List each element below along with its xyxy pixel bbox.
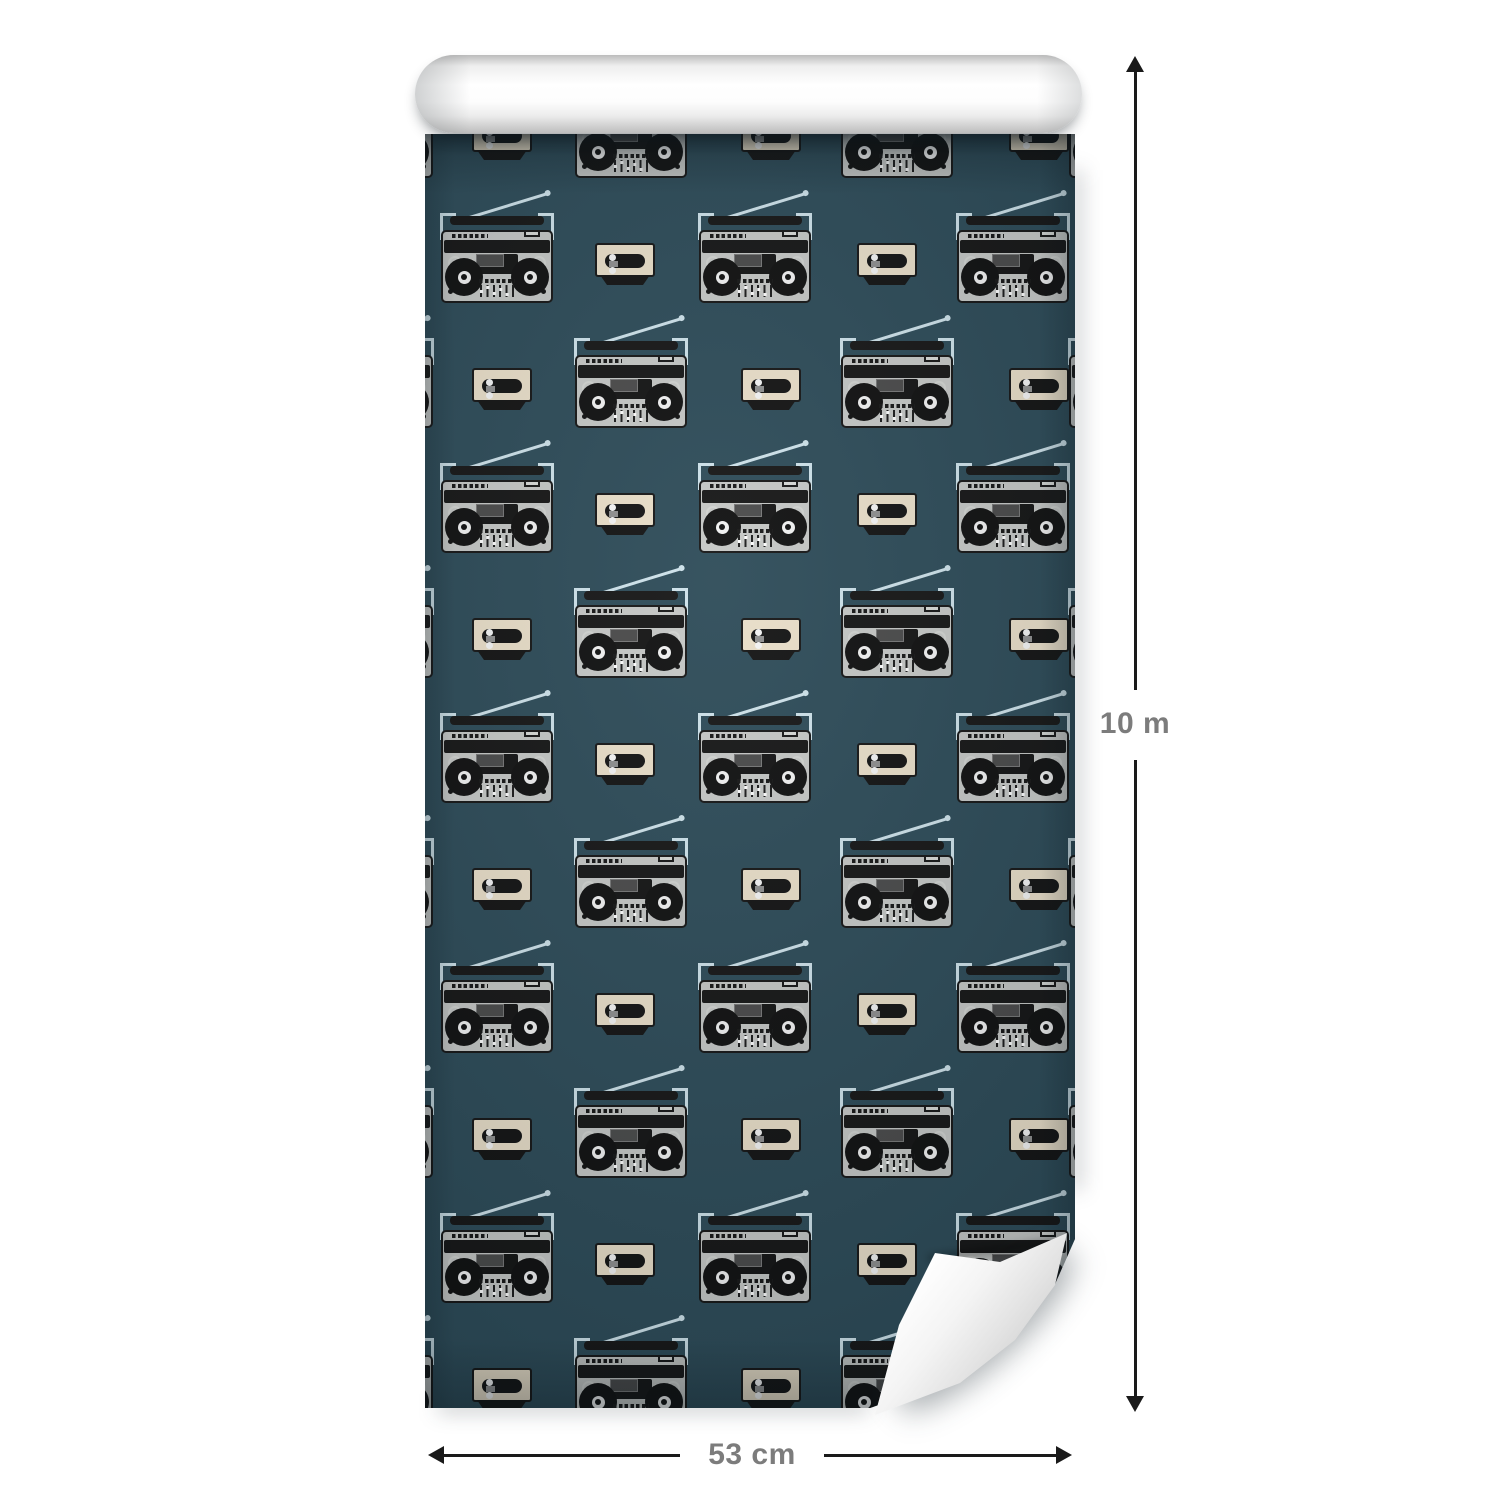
cassette-illustration [1009,1368,1069,1408]
top-button [782,480,798,487]
pattern-row [425,211,1075,299]
boombox-illustration [957,211,1069,299]
boombox-body [1069,1355,1075,1408]
width-dimension-arrow: 53 cm [428,1440,1072,1470]
boombox-body [1069,605,1075,678]
boombox-illustration [441,1211,553,1299]
pattern-row [425,336,1075,424]
cassette-window [751,1379,791,1393]
button-row [879,1154,915,1158]
cassette-body [1009,618,1069,652]
cassette-illustration [472,134,532,162]
boombox-illustration [1069,1086,1075,1174]
button-row [968,484,1004,488]
button-row [710,1234,746,1238]
tuner-strip [578,1365,684,1378]
button-row [737,529,773,533]
top-button [1040,1230,1056,1237]
boombox-body [841,855,953,928]
dimension-line [442,1454,680,1457]
boombox-body [575,355,687,428]
pattern-row [425,461,1075,549]
tuner-strip [960,740,1066,753]
cassette-window [1019,379,1059,393]
boombox-body [441,230,553,303]
boombox-body [841,605,953,678]
top-button [658,605,674,612]
cassette-illustration [472,1118,532,1162]
boombox-illustration [441,461,553,549]
boombox-illustration [575,836,687,924]
cassette-body [595,243,655,277]
button-row [968,984,1004,988]
boombox-handle [450,716,544,725]
boombox-illustration [841,586,953,674]
button-row [852,1359,888,1363]
button-row [737,779,773,783]
top-button [658,355,674,362]
tuner-strip [1072,1115,1075,1128]
cassette-illustration [1009,368,1069,412]
speaker-left-icon [1073,1383,1075,1408]
button-row [852,859,888,863]
cassette-body [857,493,917,527]
boombox-body [699,730,811,803]
top-button [524,230,540,237]
speaker-left-icon [1073,883,1075,921]
boombox-body [957,480,1069,553]
tuner-strip [844,865,950,878]
cassette-base [862,1275,912,1285]
cassette-illustration [741,368,801,412]
cassette-illustration [595,743,655,787]
boombox-body [425,855,433,928]
equalizer-sliders [996,1035,1030,1047]
cassette-window [482,879,522,893]
wallpaper-sheet [425,134,1075,1408]
top-button [924,855,940,862]
cassette-base [477,150,527,160]
cassette-base [746,1150,796,1160]
boombox-illustration [575,1086,687,1174]
boombox-handle [708,466,802,475]
boombox-body [1069,355,1075,428]
boombox-illustration [575,586,687,674]
boombox-body [425,1105,433,1178]
boombox-body [841,134,953,178]
dimension-line [1134,70,1137,690]
boombox-body [575,605,687,678]
boombox-illustration [957,711,1069,799]
cassette-window [867,1254,907,1268]
tuner-strip [578,365,684,378]
boombox-body [575,134,687,178]
pattern-row [425,134,1075,174]
boombox-body [575,1355,687,1408]
equalizer-sliders [880,660,914,672]
tuner-strip [1072,615,1075,628]
boombox-handle [450,216,544,225]
tuner-strip [844,1115,950,1128]
arrowhead-down-icon [1126,1396,1144,1412]
button-row [452,234,488,238]
cassette-base [477,650,527,660]
top-button [658,855,674,862]
cassette-illustration [595,1243,655,1287]
top-button [924,355,940,362]
button-row [452,734,488,738]
speaker-left-icon [1073,633,1075,671]
tuner-strip [444,1240,550,1253]
boombox-body [841,355,953,428]
boombox-illustration [841,836,953,924]
cassette-window [867,754,907,768]
cassette-illustration [857,493,917,537]
tuner-strip [1072,1365,1075,1378]
boombox-illustration [575,134,687,174]
cassette-illustration [857,243,917,287]
button-row [479,779,515,783]
width-label: 53 cm [680,1437,824,1473]
tuner-strip [960,990,1066,1003]
button-row [879,904,915,908]
tuner-strip [444,740,550,753]
boombox-handle [708,966,802,975]
boombox-body [425,1355,433,1408]
cassette-illustration [857,1243,917,1287]
cassette-body [472,618,532,652]
tuner-strip [444,490,550,503]
cassette-body [1009,368,1069,402]
cassette-base [862,775,912,785]
button-row [479,279,515,283]
cassette-body [595,993,655,1027]
equalizer-sliders [614,160,648,172]
cassette-body [595,1243,655,1277]
pattern-row [425,711,1075,799]
equalizer-sliders [738,785,772,797]
tuner-strip [578,615,684,628]
button-row [879,404,915,408]
boombox-illustration [575,1336,687,1408]
boombox-handle [584,841,678,850]
boombox-illustration [841,336,953,424]
cassette-illustration [472,1368,532,1408]
button-row [479,529,515,533]
speaker-left-icon [1073,1133,1075,1171]
cassette-body [472,368,532,402]
boombox-illustration [1069,586,1075,674]
button-row [586,1359,622,1363]
button-row [710,484,746,488]
cassette-illustration [1009,618,1069,662]
boombox-body [441,980,553,1053]
button-row [852,1109,888,1113]
cassette-base [477,900,527,910]
boombox-handle [584,1091,678,1100]
cassette-body [1009,134,1069,152]
tuner-strip [844,615,950,628]
button-row [852,359,888,363]
dimension-line [824,1454,1058,1457]
button-row [968,734,1004,738]
cassette-body [741,868,801,902]
boombox-body [957,730,1069,803]
button-row [737,1279,773,1283]
cassette-base [1014,400,1064,410]
boombox-illustration [425,586,433,674]
cassette-base [477,1400,527,1408]
boombox-illustration [425,336,433,424]
boombox-handle [584,1341,678,1350]
pattern-row [425,961,1075,1049]
button-row [613,654,649,658]
cassette-window [867,504,907,518]
boombox-body [441,730,553,803]
equalizer-sliders [880,910,914,922]
cassette-body [472,1118,532,1152]
button-row [710,234,746,238]
boombox-handle [850,591,944,600]
cassette-base [746,1400,796,1408]
cassette-base [1014,900,1064,910]
boombox-body [699,480,811,553]
boombox-illustration [441,711,553,799]
cassette-illustration [741,868,801,912]
cassette-window [867,254,907,268]
cassette-body [472,134,532,152]
button-row [613,404,649,408]
top-button [782,730,798,737]
cassette-window [605,254,645,268]
button-row [613,1154,649,1158]
equalizer-sliders [880,1160,914,1172]
cassette-illustration [472,868,532,912]
equalizer-sliders [480,1035,514,1047]
boombox-illustration [1069,1336,1075,1408]
tuner-strip [444,990,550,1003]
cassette-base [746,650,796,660]
boombox-illustration [425,836,433,924]
boombox-body [1069,134,1075,178]
equalizer-sliders [480,535,514,547]
cassette-window [751,379,791,393]
boombox-handle [708,1216,802,1225]
top-button [1040,980,1056,987]
button-row [879,654,915,658]
button-row [879,154,915,158]
cassette-window [482,134,522,143]
top-button [524,480,540,487]
boombox-handle [850,841,944,850]
boombox-body [425,134,433,178]
cassette-window [751,629,791,643]
cassette-illustration [741,618,801,662]
equalizer-sliders [480,285,514,297]
equalizer-sliders [480,785,514,797]
cassette-base [1014,150,1064,160]
cassette-body [595,493,655,527]
equalizer-sliders [996,285,1030,297]
boombox-handle [966,466,1060,475]
cassette-illustration [741,1368,801,1408]
boombox-body [699,230,811,303]
boombox-body [699,1230,811,1303]
cassette-illustration [857,743,917,787]
cassette-body [857,743,917,777]
tuner-strip [425,1365,430,1378]
cassette-illustration [1009,868,1069,912]
cassette-base [1014,1400,1064,1408]
tuner-strip [960,490,1066,503]
boombox-body [425,355,433,428]
tuner-strip [425,1115,430,1128]
boombox-handle [584,591,678,600]
cassette-window [482,1379,522,1393]
height-label: 10 m [1065,702,1205,746]
cassette-illustration [1009,134,1069,162]
cassette-base [477,400,527,410]
cassette-body [741,1118,801,1152]
tuner-strip [578,1115,684,1128]
top-button [924,1105,940,1112]
equalizer-sliders [738,1285,772,1297]
height-dimension-arrow: 10 m [1121,56,1149,1412]
top-button [524,980,540,987]
boombox-body [957,230,1069,303]
speaker-left-icon [1073,134,1075,171]
equalizer-sliders [880,410,914,422]
cassette-window [1019,1379,1059,1393]
equalizer-sliders [996,785,1030,797]
arrowhead-right-icon [1056,1446,1072,1464]
button-row [995,1029,1031,1033]
equalizer-sliders [738,535,772,547]
boombox-illustration [425,1336,433,1408]
boombox-illustration [957,461,1069,549]
cassette-base [862,1025,912,1035]
boombox-body [441,1230,553,1303]
button-row [452,484,488,488]
cassette-base [600,525,650,535]
boombox-handle [708,216,802,225]
tuner-strip [702,990,808,1003]
cassette-base [746,150,796,160]
boombox-illustration [441,211,553,299]
equalizer-sliders [614,1160,648,1172]
cassette-window [482,379,522,393]
button-row [995,529,1031,533]
boombox-illustration [841,1086,953,1174]
button-row [452,1234,488,1238]
dimension-line [1134,760,1137,1396]
boombox-handle [966,216,1060,225]
cassette-window [605,504,645,518]
cassette-window [482,629,522,643]
tuner-strip [844,365,950,378]
boombox-illustration [575,336,687,424]
boombox-illustration [425,1086,433,1174]
top-button [658,1355,674,1362]
equalizer-sliders [880,160,914,172]
boombox-illustration [699,961,811,1049]
cassette-base [862,275,912,285]
button-row [710,984,746,988]
button-row [995,279,1031,283]
tuner-strip [425,865,430,878]
cassette-window [1019,879,1059,893]
cassette-body [472,1368,532,1402]
button-row [479,1279,515,1283]
boombox-body [957,980,1069,1053]
equalizer-sliders [738,1035,772,1047]
boombox-handle [450,466,544,475]
boombox-illustration [425,134,433,174]
wallpaper-pattern [425,134,1075,1408]
boombox-illustration [699,1211,811,1299]
cassette-window [605,754,645,768]
button-row [479,1029,515,1033]
boombox-handle [450,1216,544,1225]
boombox-illustration [441,961,553,1049]
boombox-handle [708,716,802,725]
tuner-strip [444,240,550,253]
tuner-strip [702,1240,808,1253]
cassette-base [600,275,650,285]
boombox-body [425,605,433,678]
top-button [658,1105,674,1112]
boombox-illustration [1069,336,1075,424]
boombox-body [575,855,687,928]
cassette-window [482,1129,522,1143]
boombox-illustration [1069,134,1075,174]
boombox-illustration [957,961,1069,1049]
button-row [737,1029,773,1033]
top-button [1040,480,1056,487]
top-button [782,1230,798,1237]
cassette-illustration [595,993,655,1037]
boombox-handle [850,341,944,350]
button-row [586,609,622,613]
cassette-body [1009,868,1069,902]
button-row [710,734,746,738]
button-row [968,1234,1004,1238]
boombox-body [441,480,553,553]
equalizer-sliders [480,1285,514,1297]
cassette-body [1009,1118,1069,1152]
cassette-base [746,900,796,910]
cassette-illustration [595,493,655,537]
cassette-base [1014,650,1064,660]
tuner-strip [425,615,430,628]
equalizer-sliders [996,535,1030,547]
cassette-base [600,1025,650,1035]
wallpaper-roll [415,55,1082,133]
tuner-strip [702,240,808,253]
cassette-window [751,134,791,143]
cassette-window [1019,1129,1059,1143]
button-row [452,984,488,988]
cassette-window [751,1129,791,1143]
boombox-body [1069,855,1075,928]
pattern-row [425,586,1075,674]
boombox-handle [850,1091,944,1100]
pattern-row [425,836,1075,924]
tuner-strip [702,490,808,503]
tuner-strip [960,240,1066,253]
tuner-strip [425,365,430,378]
cassette-body [857,993,917,1027]
